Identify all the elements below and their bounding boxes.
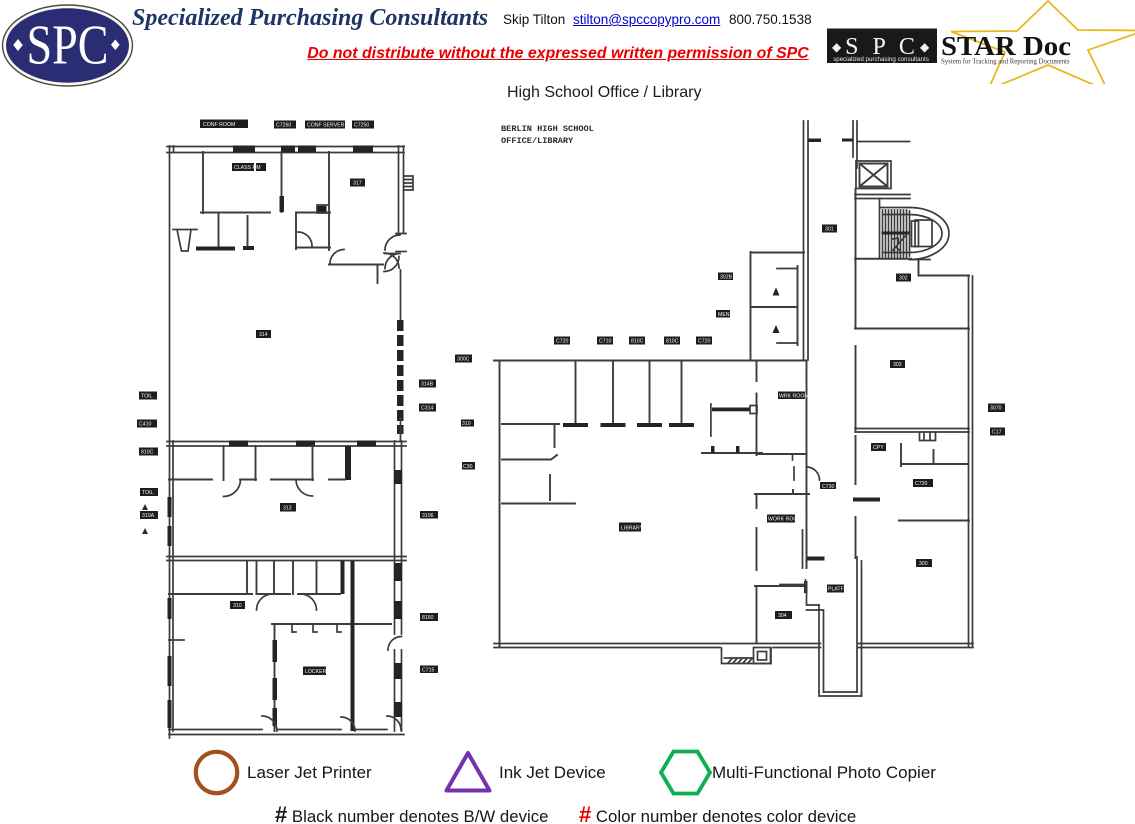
svg-text:303: 303	[893, 362, 902, 368]
svg-text:MEN: MEN	[718, 312, 730, 318]
svg-text:310: 310	[233, 603, 242, 609]
svg-text:CONF ROOM: CONF ROOM	[203, 122, 235, 128]
svg-text:WRK ROOM: WRK ROOM	[779, 394, 809, 400]
svg-text:CLASS RM: CLASS RM	[234, 165, 261, 171]
svg-text:CPY: CPY	[873, 445, 884, 451]
svg-text:313: 313	[283, 506, 292, 512]
svg-text:C720: C720	[915, 481, 928, 487]
svg-text:TOIL: TOIL	[141, 394, 153, 400]
svg-text:C7250: C7250	[354, 123, 369, 129]
svg-text:C710: C710	[599, 339, 612, 345]
svg-text:810C: 810C	[666, 339, 679, 345]
svg-text:302B: 302B	[720, 275, 733, 281]
svg-text:C7260: C7260	[276, 123, 291, 129]
svg-text:OFFICE/LIBRARY: OFFICE/LIBRARY	[501, 136, 574, 146]
svg-text:810C: 810C	[141, 450, 154, 456]
svg-text:LIBRARY: LIBRARY	[621, 526, 644, 532]
svg-text:310: 310	[462, 421, 471, 427]
svg-text:BERLIN HIGH SCHOOL: BERLIN HIGH SCHOOL	[501, 124, 594, 134]
svg-text:C410: C410	[139, 422, 152, 428]
svg-text:300: 300	[919, 561, 928, 567]
svg-text:C715: C715	[422, 668, 435, 674]
svg-text:C720: C720	[556, 339, 569, 345]
svg-text:302: 302	[899, 276, 908, 282]
svg-text:3106: 3106	[422, 513, 434, 519]
svg-text:317: 317	[353, 181, 362, 187]
svg-text:PLATF: PLATF	[828, 587, 844, 593]
svg-text:314: 314	[259, 332, 268, 338]
svg-text:310A: 310A	[142, 513, 155, 519]
svg-text:C17: C17	[992, 430, 1002, 436]
svg-text:WORK ROOM: WORK ROOM	[768, 517, 802, 523]
svg-text:300C: 300C	[457, 357, 470, 363]
svg-text:TOIL: TOIL	[142, 490, 154, 496]
svg-text:CONF SERVER: CONF SERVER	[307, 123, 345, 129]
svg-text:810C: 810C	[631, 339, 644, 345]
svg-text:LOCKER: LOCKER	[305, 669, 327, 675]
svg-text:C314: C314	[421, 406, 434, 412]
svg-text:C720: C720	[698, 339, 711, 345]
svg-text:C730: C730	[822, 484, 835, 490]
svg-text:3070: 3070	[990, 406, 1002, 412]
svg-text:301: 301	[825, 227, 834, 233]
svg-text:8160: 8160	[422, 615, 434, 621]
svg-text:314B: 314B	[421, 382, 434, 388]
svg-text:C30: C30	[463, 464, 473, 470]
svg-text:304: 304	[778, 613, 787, 619]
